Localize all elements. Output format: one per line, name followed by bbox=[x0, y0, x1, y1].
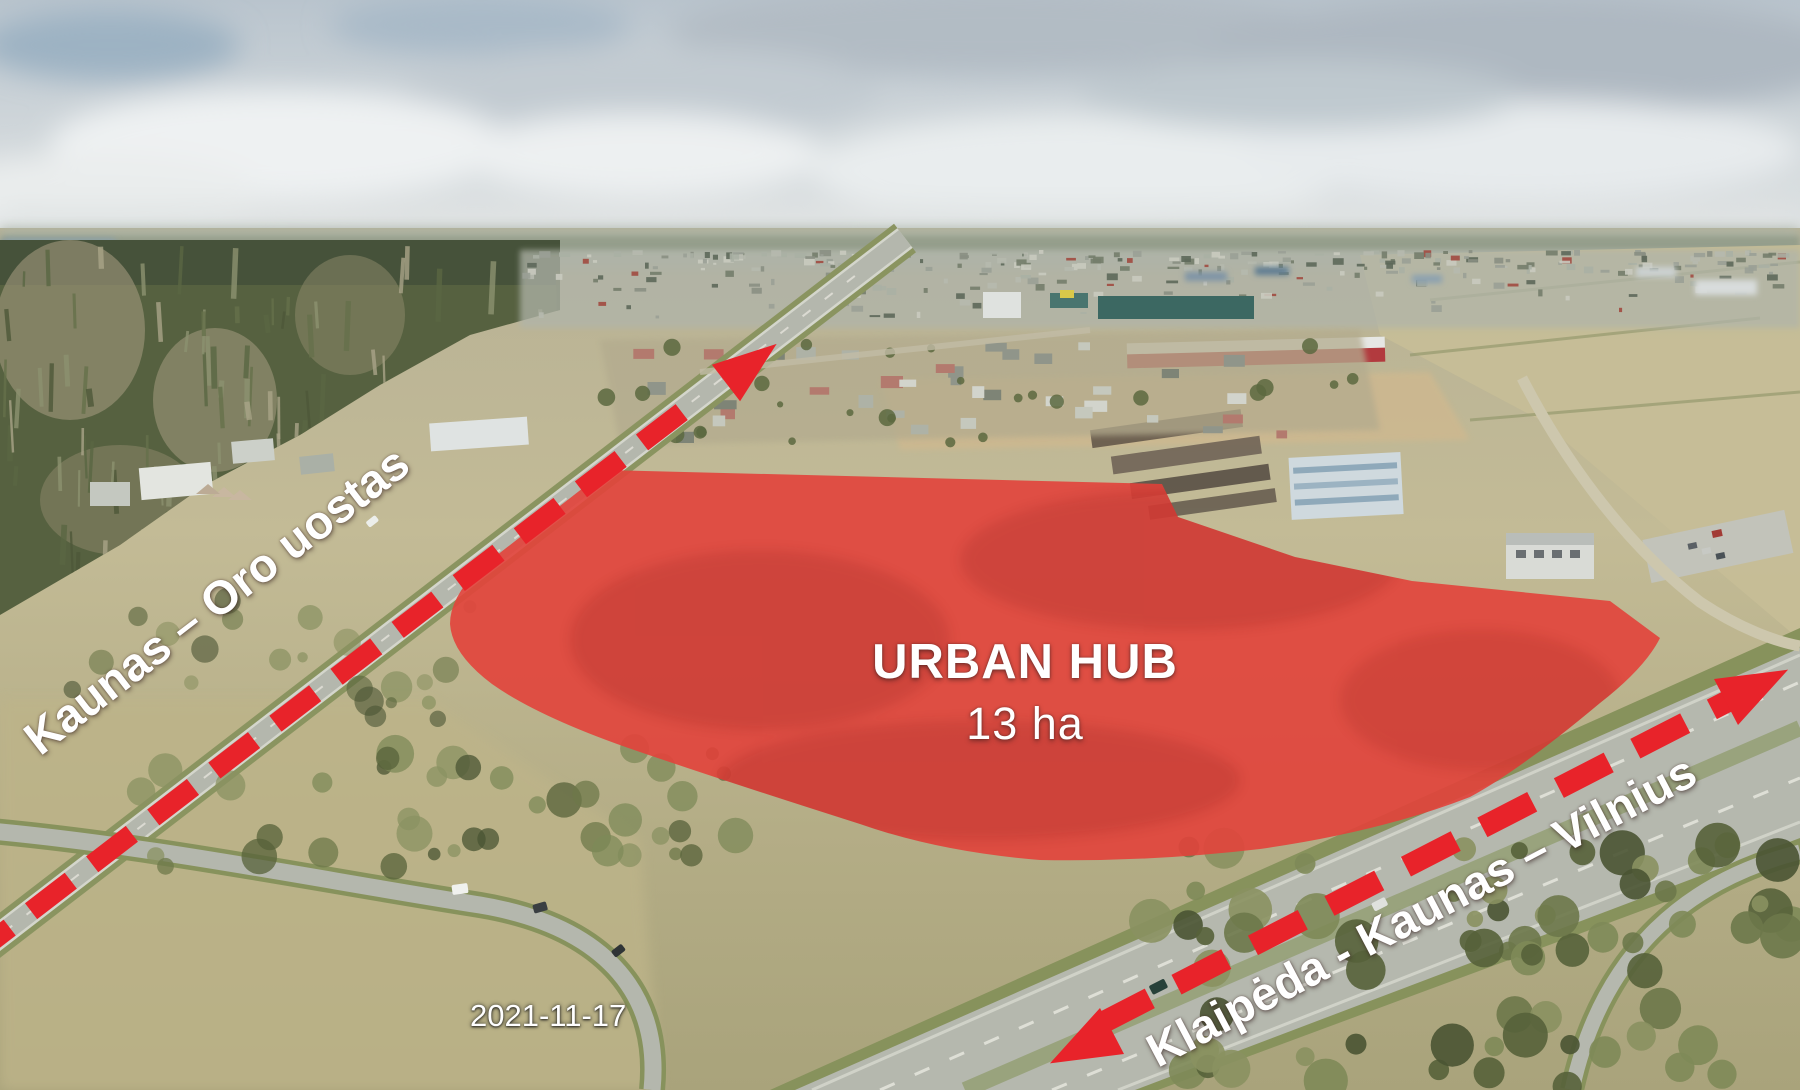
blue-roof-building bbox=[1289, 452, 1404, 520]
date-stamp: 2021-11-17 bbox=[470, 998, 626, 1034]
site-area-label: 13 ha bbox=[850, 698, 1200, 750]
white-office-building bbox=[1506, 533, 1594, 579]
site-title-label: URBAN HUB bbox=[850, 634, 1200, 690]
slide-aerial-site-photo: URBAN HUB 13 ha Kaunas – Oro uostas Klai… bbox=[0, 0, 1800, 1090]
